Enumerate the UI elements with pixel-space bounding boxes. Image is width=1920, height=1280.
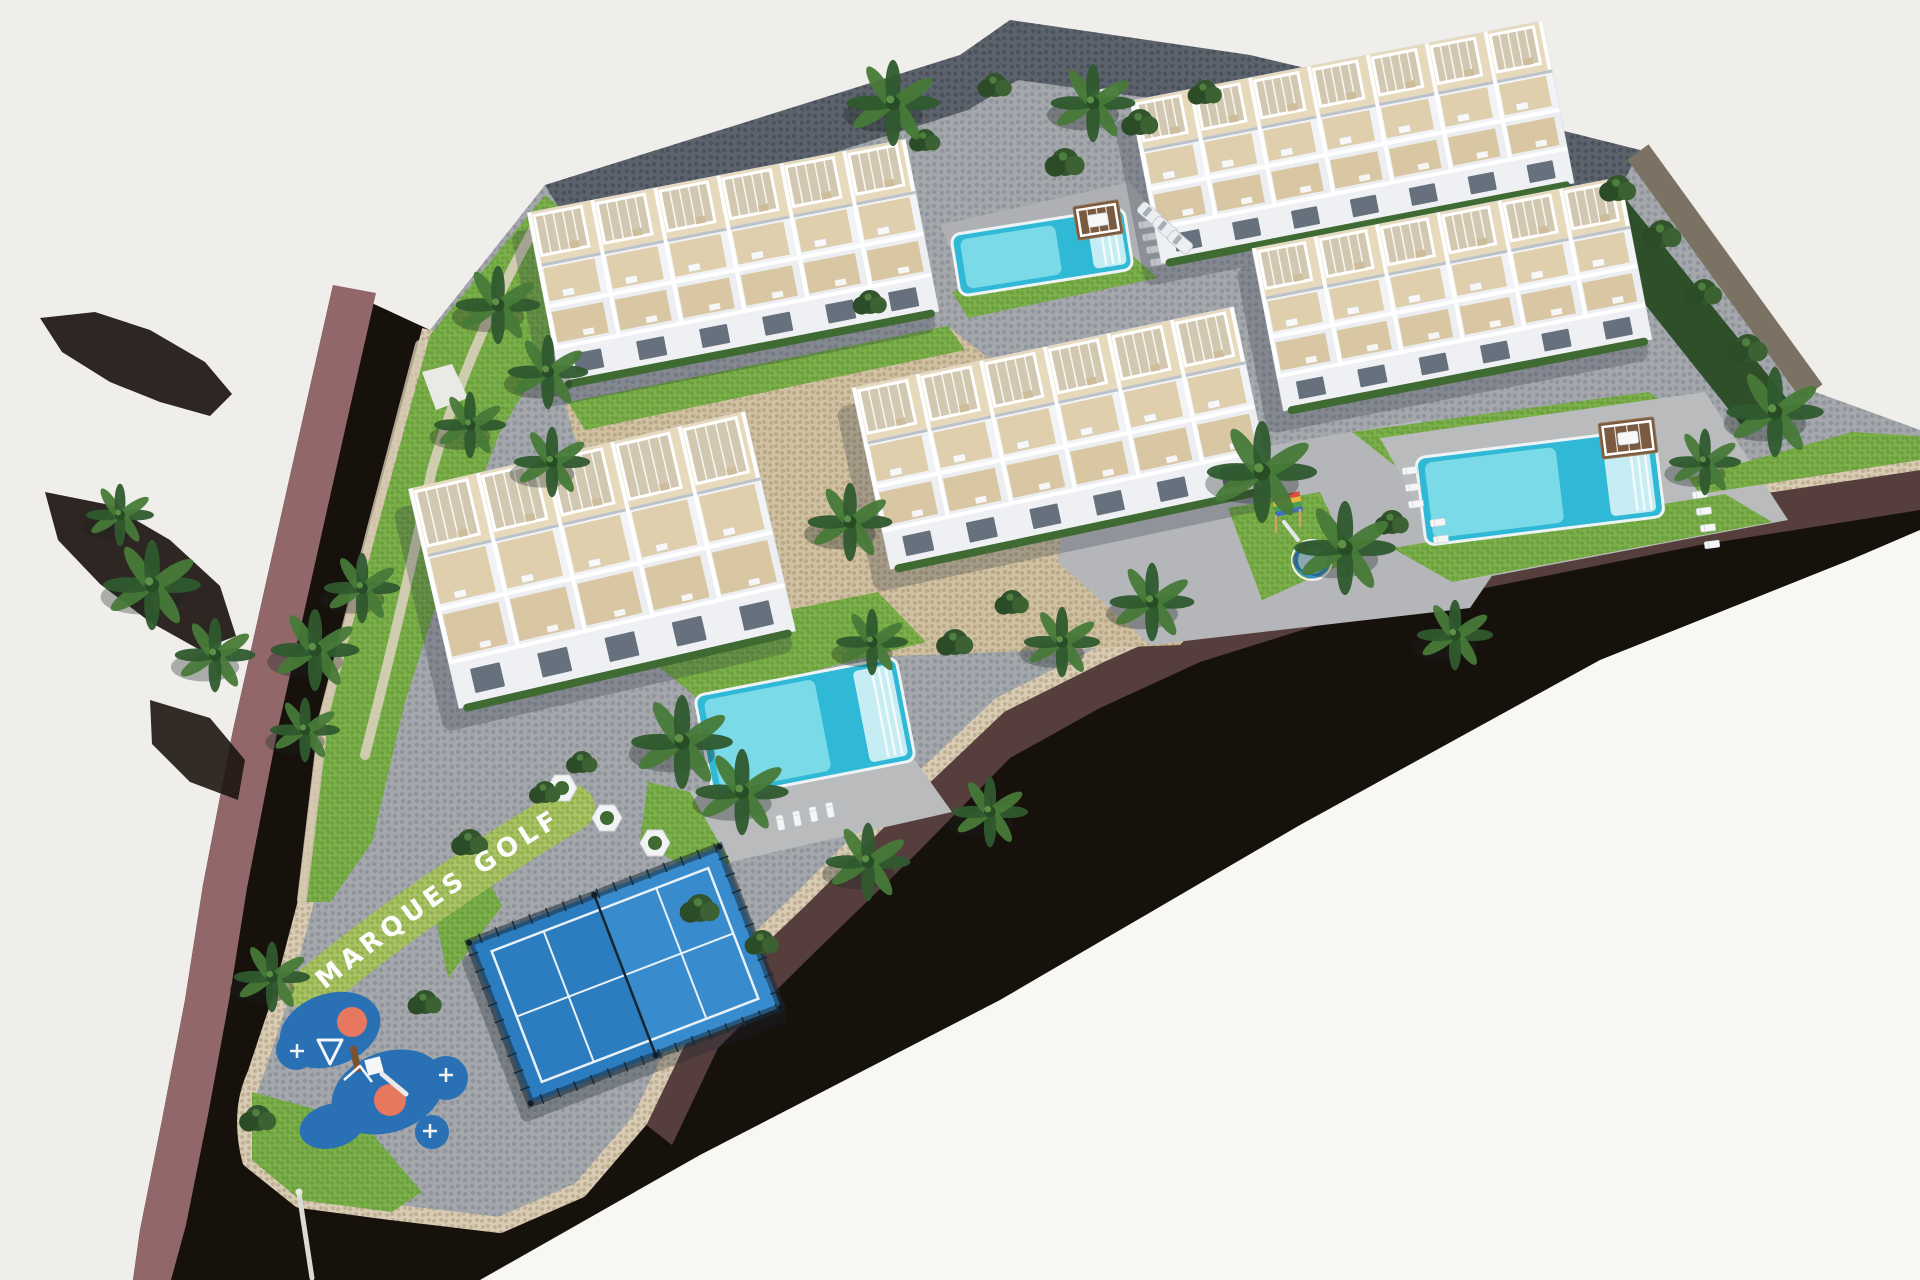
aerial-site-render: MARQUES GOLF [0,0,1920,1280]
playground-pad-coral-1 [337,1007,367,1037]
street-lamp-head [296,1189,303,1196]
pool-north-pergola [1073,200,1124,241]
pool-east-pergola [1598,417,1658,460]
site-plan-svg: MARQUES GOLF [0,0,1920,1280]
planter-2-shrub [600,811,614,825]
planter-3-shrub [648,836,662,850]
